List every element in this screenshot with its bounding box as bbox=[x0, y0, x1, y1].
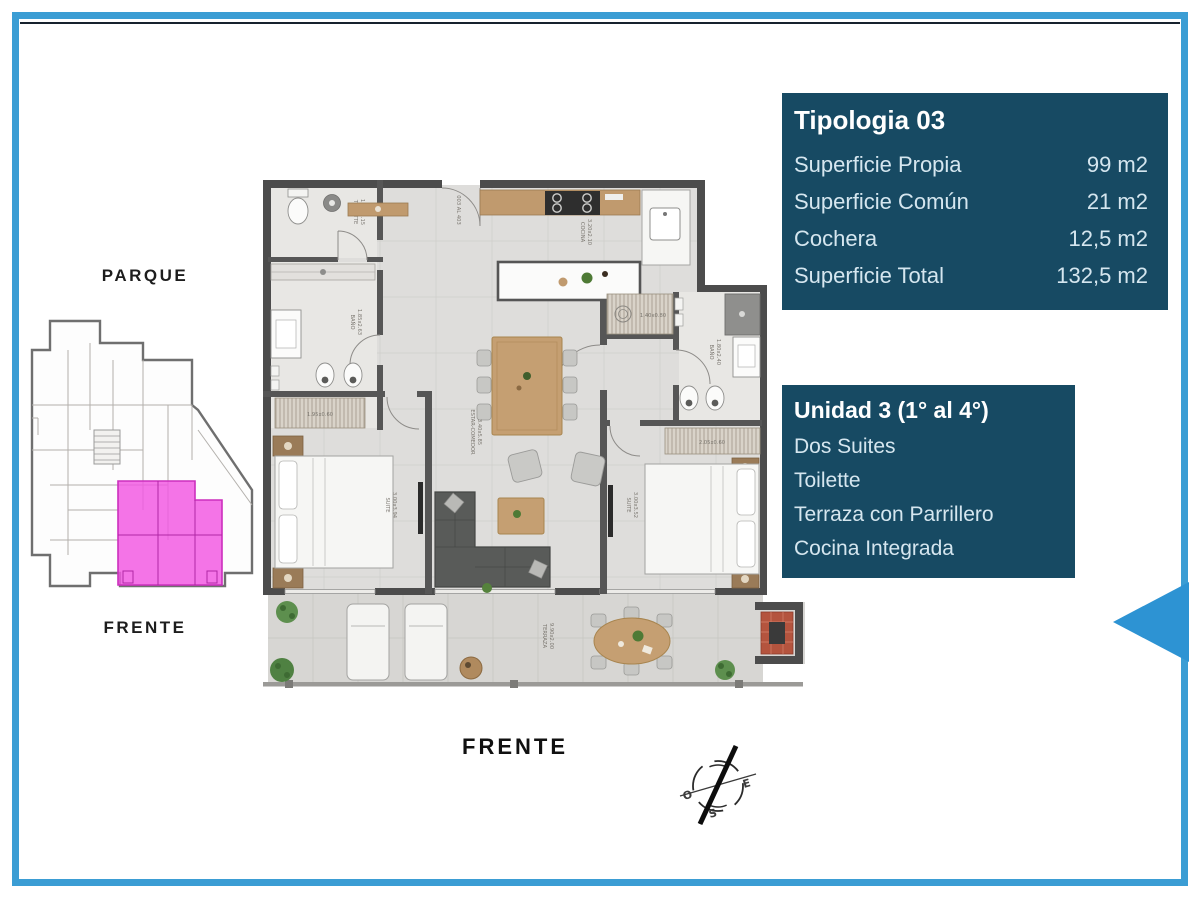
feature-item: Toilette bbox=[794, 464, 1063, 498]
suite2-tv bbox=[608, 485, 613, 537]
svg-text:TERRAZA: TERRAZA bbox=[541, 623, 547, 649]
svg-text:BAÑO: BAÑO bbox=[349, 314, 356, 329]
spec-row: Superficie Total 132,5 m2 bbox=[794, 257, 1148, 294]
kitchen-label-group: COCINA 3.20x2.10 bbox=[579, 219, 592, 245]
svg-text:1.85x2.63: 1.85x2.63 bbox=[356, 309, 362, 335]
plant bbox=[715, 660, 735, 680]
feature-item: Terraza con Parrillero bbox=[794, 498, 1063, 532]
flyer-page: PARQUE FRENTE bbox=[0, 0, 1200, 900]
terrace-table bbox=[594, 618, 670, 664]
spec-value: 132,5 m2 bbox=[1056, 257, 1148, 294]
spec-row: Cochera 12,5 m2 bbox=[794, 220, 1148, 257]
spec-label: Superficie Total bbox=[794, 257, 944, 294]
armchair-2 bbox=[570, 451, 606, 487]
spec-value: 21 m2 bbox=[1087, 183, 1148, 220]
dining-table bbox=[492, 337, 562, 435]
svg-text:3.40x5.85: 3.40x5.85 bbox=[476, 419, 482, 445]
apartment-floor-plan: 003 AL 403 TOILETTE 1.05x1.15 bbox=[255, 170, 825, 715]
svg-text:3.00x3.52: 3.00x3.52 bbox=[632, 492, 638, 518]
svg-text:9.90x2.00: 9.90x2.00 bbox=[548, 623, 554, 649]
unidad-card: Unidad 3 (1° al 4°) Dos Suites Toilette … bbox=[782, 385, 1075, 578]
side-table bbox=[460, 657, 482, 679]
svg-text:BAÑO: BAÑO bbox=[708, 344, 715, 359]
plant bbox=[276, 601, 298, 623]
tipologia-card: Tipologia 03 Superficie Propia 99 m2 Sup… bbox=[782, 93, 1168, 310]
spec-label: Cochera bbox=[794, 220, 877, 257]
building-key-plan bbox=[28, 310, 262, 592]
plant bbox=[270, 658, 294, 682]
spec-value: 99 m2 bbox=[1087, 146, 1148, 183]
lounge-chair bbox=[405, 604, 447, 680]
spec-label: Superficie Común bbox=[794, 183, 969, 220]
svg-text:COCINA: COCINA bbox=[579, 222, 585, 243]
spec-row: Superficie Propia 99 m2 bbox=[794, 146, 1148, 183]
spec-value: 12,5 m2 bbox=[1069, 220, 1149, 257]
hall-closet: 1.40x0.80 bbox=[607, 294, 673, 334]
stair-core bbox=[94, 430, 120, 464]
compass-icon: O E S bbox=[676, 740, 760, 832]
frente-main-label: FRENTE bbox=[420, 734, 610, 760]
terrace-label-group: TERRAZA 9.90x2.00 bbox=[541, 623, 554, 649]
left-arrow-icon bbox=[1113, 582, 1189, 662]
svg-text:1.95x0.60: 1.95x0.60 bbox=[307, 412, 333, 418]
svg-text:1.40x0.80: 1.40x0.80 bbox=[640, 313, 666, 319]
tipologia-title: Tipologia 03 bbox=[794, 105, 1148, 136]
svg-text:SUITE: SUITE bbox=[384, 497, 390, 512]
dining bbox=[477, 337, 577, 435]
parque-label: PARQUE bbox=[28, 266, 262, 286]
svg-text:2.05x0.60: 2.05x0.60 bbox=[699, 440, 725, 446]
svg-text:ESTAR-COMEDOR: ESTAR-COMEDOR bbox=[469, 409, 475, 455]
stove bbox=[545, 191, 600, 215]
unidad-title: Unidad 3 (1° al 4°) bbox=[794, 397, 1063, 424]
spec-label: Superficie Propia bbox=[794, 146, 962, 183]
feature-item: Dos Suites bbox=[794, 430, 1063, 464]
svg-text:1.80x2.40: 1.80x2.40 bbox=[715, 339, 721, 365]
key-plan-block: PARQUE FRENTE bbox=[28, 266, 262, 638]
feature-item: Cocina Integrada bbox=[794, 532, 1063, 566]
svg-text:SUITE: SUITE bbox=[625, 497, 631, 512]
compass-west: O bbox=[681, 788, 694, 803]
suite1-tv bbox=[418, 482, 423, 534]
compass-south: S bbox=[707, 806, 718, 821]
top-accent-line bbox=[20, 22, 1180, 24]
svg-text:3.00x3.94: 3.00x3.94 bbox=[391, 492, 397, 519]
lounge-chair bbox=[347, 604, 389, 680]
coffee-table bbox=[498, 498, 544, 534]
entrance-unit-label: 003 AL 403 bbox=[455, 195, 461, 225]
svg-text:3.20x2.10: 3.20x2.10 bbox=[586, 219, 592, 245]
spec-row: Superficie Común 21 m2 bbox=[794, 183, 1148, 220]
terrace-windows bbox=[285, 590, 715, 594]
frente-key-label: FRENTE bbox=[28, 618, 262, 638]
